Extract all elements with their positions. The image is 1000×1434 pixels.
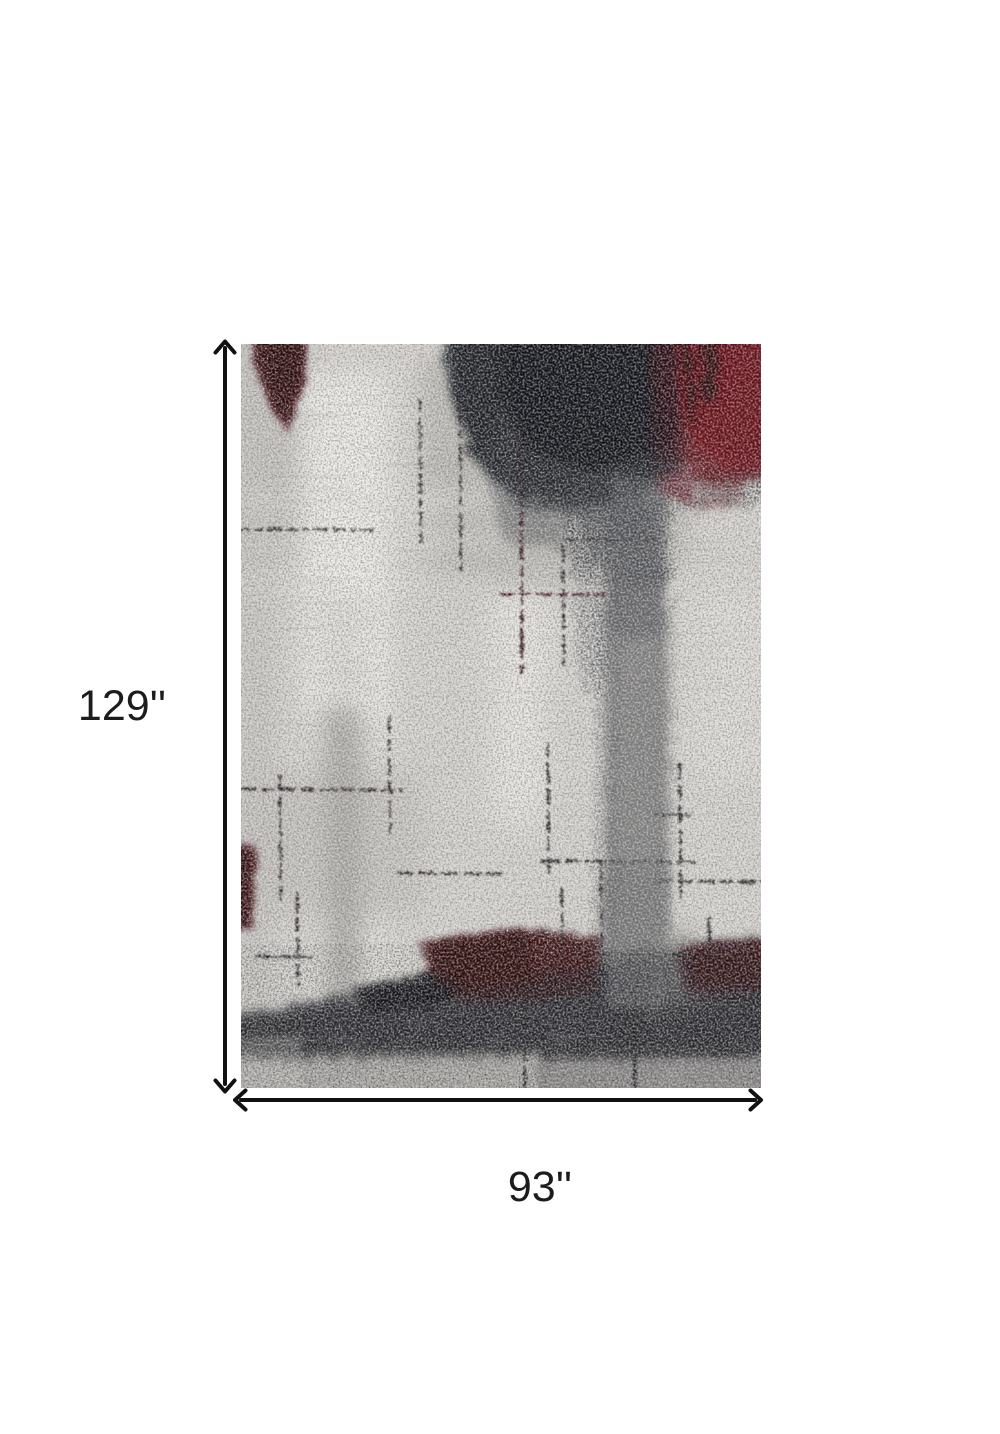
svg-text:93'': 93'' [508,1163,572,1211]
svg-text:129'': 129'' [78,682,166,730]
